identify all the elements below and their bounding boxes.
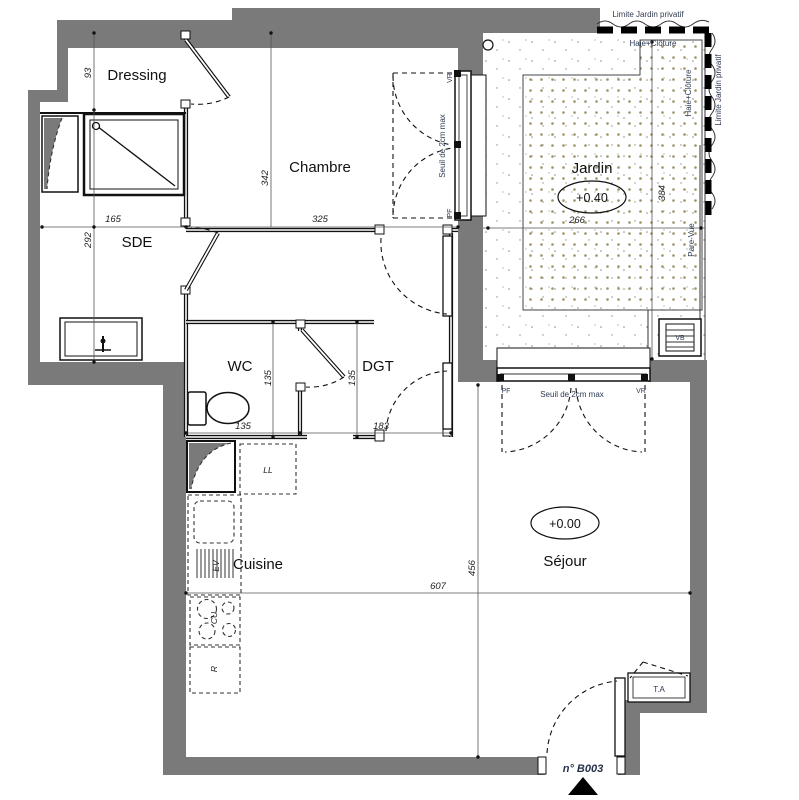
entry-marker: n° B003 — [563, 763, 603, 795]
dim-183: 183 — [373, 421, 390, 432]
sde-duct — [42, 116, 78, 192]
room-label-dgt: DGT — [362, 358, 394, 375]
washbasin — [60, 318, 142, 360]
sink-counter — [188, 495, 241, 595]
shower-tray — [84, 114, 184, 195]
entry-door — [538, 678, 625, 774]
jardin-terrace — [523, 40, 702, 310]
ann-pare-vue: Pare-Vue — [687, 223, 696, 257]
ann-limite-right: Limite Jardin privatif — [714, 54, 723, 126]
dim-607: 607 — [430, 581, 447, 592]
label-sink: EV — [211, 559, 221, 572]
ann-pf-chambre: PF — [447, 209, 454, 218]
chambre-door — [375, 225, 452, 316]
room-label-jardin: Jardin — [572, 160, 613, 177]
dim-292: 292 — [83, 231, 94, 249]
dim-456: 456 — [467, 559, 478, 576]
ann-limite-top: Limite Jardin privatif — [612, 10, 684, 19]
dim-93: 93 — [83, 67, 94, 78]
label-fridge: R — [209, 666, 219, 672]
ann-seuil-chambre: Seuil de 2cm max — [438, 114, 447, 178]
sejour-bay-window — [497, 348, 650, 452]
floor-plan-page: 93 165 292 342 325 135 135 135 183 266 3… — [0, 0, 799, 800]
dim-135-dgt: 135 — [347, 369, 358, 386]
dim-135-wc-h: 135 — [263, 369, 274, 386]
dim-342: 342 — [260, 169, 271, 186]
dim-384: 384 — [657, 185, 668, 201]
ann-seuil-sejour: Seuil de 2cm max — [540, 390, 604, 399]
rainwater-pipe — [483, 40, 493, 50]
dim-135-wc-w: 135 — [235, 421, 252, 432]
unit-number: n° B003 — [563, 763, 603, 775]
kitchen-duct — [187, 441, 235, 492]
ann-vr-sejour: VR — [636, 388, 646, 395]
level-jardin: +0.40 — [576, 191, 608, 205]
dim-165: 165 — [105, 214, 122, 225]
ann-haie-right: Haie+Clôture — [684, 69, 693, 116]
ann-vb: VB — [675, 335, 685, 342]
label-washing-machine: LL — [263, 465, 273, 475]
ta-electrical-cabinet — [628, 662, 690, 702]
floor-plan-drawing: 93 165 292 342 325 135 135 135 183 266 3… — [0, 0, 799, 800]
ann-pf-sejour: PF — [502, 388, 511, 395]
ann-haie-top: Haie+Clôture — [630, 39, 677, 48]
ann-vr-chambre: VR — [447, 73, 454, 83]
dim-266: 266 — [568, 215, 586, 226]
room-label-chambre: Chambre — [289, 159, 351, 176]
wc-door — [296, 320, 344, 391]
level-sejour: +0.00 — [549, 517, 581, 531]
dim-325: 325 — [312, 214, 329, 225]
room-label-sde: SDE — [122, 234, 153, 251]
ann-ta: T.A — [653, 685, 665, 694]
room-label-cuisine: Cuisine — [233, 556, 283, 573]
room-label-dressing: Dressing — [107, 67, 166, 84]
room-label-wc: WC — [228, 358, 253, 375]
room-label-sejour: Séjour — [543, 553, 586, 570]
label-cooktop: CU — [209, 611, 219, 624]
entry-arrow-icon — [568, 777, 598, 795]
